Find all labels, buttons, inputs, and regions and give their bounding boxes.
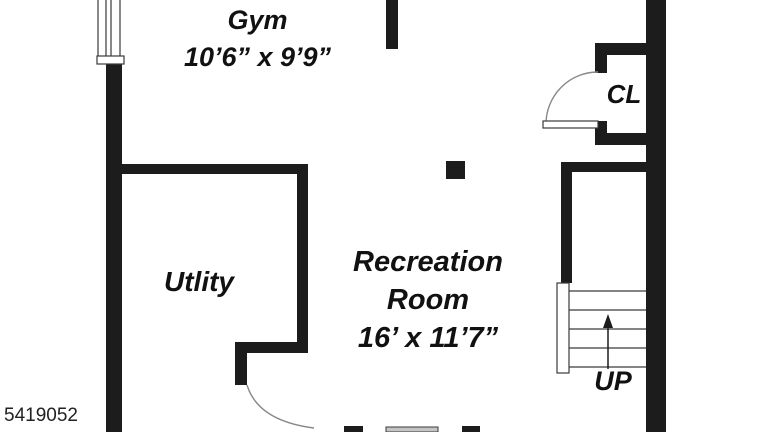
window-sill — [97, 56, 124, 64]
gym-room-label: Gym 10’6” x 9’9” — [137, 2, 378, 76]
left-exterior-wall — [106, 62, 122, 432]
right-exterior-wall — [646, 0, 666, 432]
gym-wall-stub — [386, 0, 398, 49]
closet-bottom-wall — [595, 133, 648, 145]
bottom-wall-stub — [344, 426, 363, 432]
support-column — [446, 161, 465, 179]
utility-door-swing-arc — [247, 385, 314, 428]
bottom-wall-stub — [462, 426, 480, 432]
closet-door-leaf — [543, 121, 598, 128]
utility-room-label: Utlity — [149, 266, 249, 298]
floor-plan-drawing — [0, 0, 768, 432]
utility-door-jamb — [235, 342, 247, 385]
gym-room-dimensions: 10’6” x 9’9” — [137, 39, 378, 76]
up-arrow-head — [603, 314, 613, 328]
recreation-room-name-line1: Recreation — [318, 243, 538, 281]
recreation-room-name-line2: Room — [318, 281, 538, 319]
closet-label: CL — [600, 79, 648, 110]
stairs-up-label: UP — [586, 366, 640, 397]
window-icon — [111, 0, 120, 59]
recreation-room-dimensions: 16’ x 11’7” — [318, 319, 538, 357]
utility-top-wall — [122, 164, 308, 174]
closet-door-swing-arc — [546, 72, 598, 124]
utility-right-wall — [297, 164, 308, 353]
closet-door-jamb-top — [595, 43, 607, 73]
stair-railing — [557, 283, 569, 373]
listing-id: 5419052 — [4, 405, 78, 427]
stairwell-top-wall — [561, 162, 646, 172]
bottom-window-segment — [386, 427, 438, 432]
recreation-room-label: Recreation Room 16’ x 11’7” — [318, 243, 538, 357]
gym-room-name: Gym — [137, 2, 378, 39]
stairwell-left-wall — [561, 162, 572, 283]
window-icon — [98, 0, 106, 59]
floor-plan: Gym 10’6” x 9’9” Recreation Room 16’ x 1… — [0, 0, 768, 432]
